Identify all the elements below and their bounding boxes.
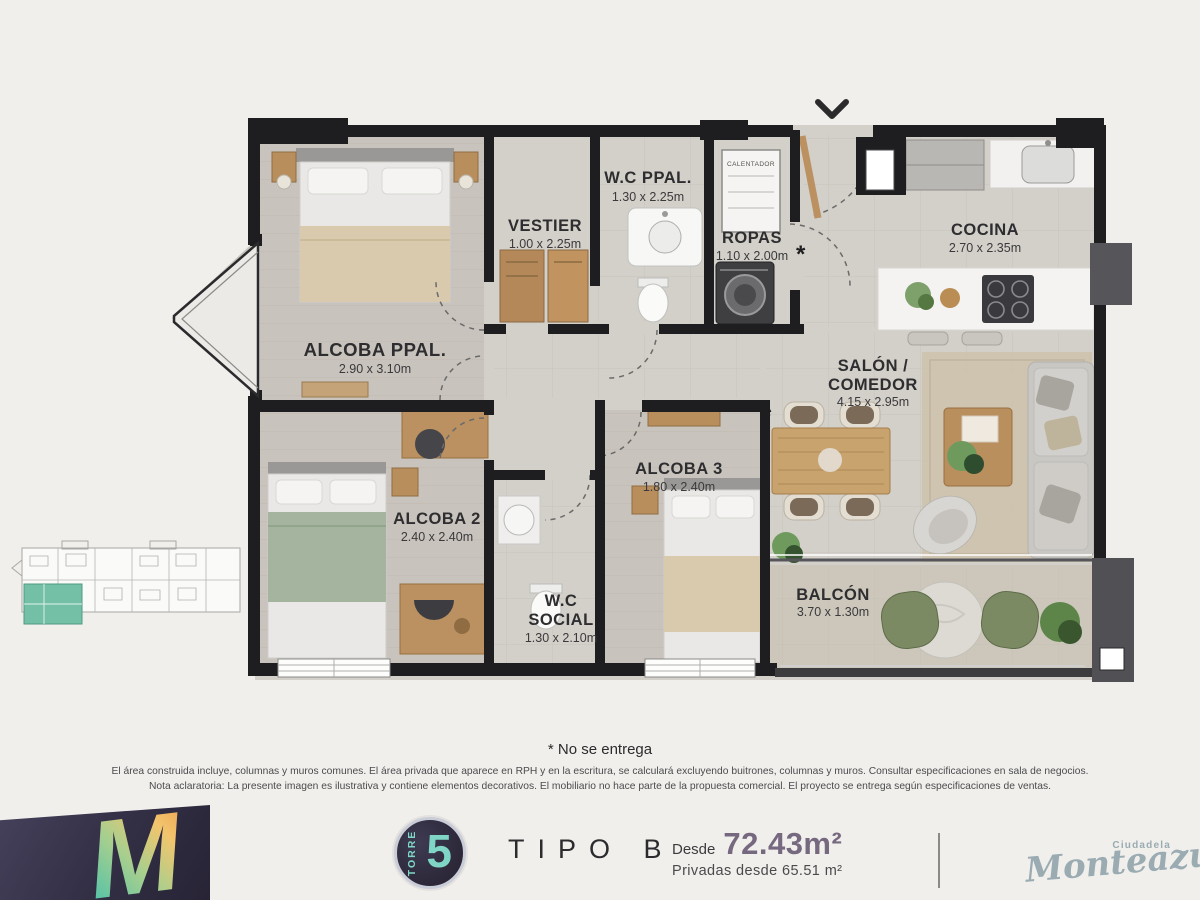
label-wc-social-1: W.C (545, 592, 578, 610)
tower-badge-word: TORRE (406, 830, 418, 877)
salon-asterisk: * (762, 403, 772, 430)
notes-block: * No se entrega El área construida inclu… (80, 741, 1120, 795)
dims-alcoba-2: 2.40 x 2.40m (401, 530, 473, 544)
key-plan (12, 541, 240, 624)
label-salon-1: SALÓN / (838, 356, 908, 375)
dims-balcon: 3.70 x 1.30m (797, 605, 869, 619)
brand-m-letter: M (82, 789, 190, 900)
label-cocina: COCINA (951, 221, 1019, 239)
entry-closet-door (866, 150, 894, 190)
ropas-asterisk: * (796, 241, 806, 268)
unit-type-label: TIPO B (508, 834, 675, 865)
dims-alcoba-ppal: 2.90 x 3.10m (339, 362, 411, 376)
floorplan-svg: CALENTADOR (0, 0, 1200, 760)
label-salon-2: COMEDOR (828, 376, 918, 394)
label-alcoba-ppal: ALCOBA PPAL. (304, 339, 447, 360)
tower-badge: TORRE 5 (394, 817, 466, 889)
closet-vestier (500, 250, 588, 322)
area-prefix: Desde (672, 841, 715, 858)
disclaimer-line-1: El área construida incluye, columnas y m… (80, 764, 1120, 779)
brand-m-logo: M (70, 790, 255, 900)
dims-ropas: 1.10 x 2.00m (716, 249, 788, 263)
area-value: 72.43m² (723, 826, 842, 862)
dims-wc-ppal: 1.30 x 2.25m (612, 190, 684, 204)
label-balcon: BALCÓN (796, 585, 870, 604)
no-entrega-note: * No se entrega (80, 741, 1120, 758)
brand-wordmark: Ciudadela Monteazul (1015, 828, 1185, 892)
private-area: Privadas desde 65.51 m² (672, 863, 932, 879)
floorplan-page: CALENTADOR (0, 0, 1200, 900)
footer-divider (938, 833, 940, 888)
label-wc-social-2: SOCIAL (528, 611, 593, 629)
label-alcoba-3: ALCOBA 3 (635, 460, 723, 478)
area-block: Desde 72.43m² Privadas desde 65.51 m² (672, 826, 932, 879)
entry-arrow-icon (818, 102, 846, 116)
living-set (903, 352, 1094, 565)
tower-badge-number: 5 (426, 824, 452, 878)
column-right (1090, 243, 1132, 305)
balcony-window (1100, 648, 1124, 670)
label-vestier: VESTIER (508, 217, 582, 235)
dims-cocina: 2.70 x 2.35m (949, 241, 1021, 255)
dims-vestier: 1.00 x 2.25m (509, 237, 581, 251)
label-alcoba-2: ALCOBA 2 (393, 510, 481, 528)
dims-alcoba-3: 1.80 x 2.40m (643, 480, 715, 494)
dims-wc-social: 1.30 x 2.10m (525, 631, 597, 645)
label-ropas: ROPAS (722, 229, 782, 247)
label-wc-ppal: W.C PPAL. (604, 169, 692, 187)
calentador-label: CALENTADOR (727, 161, 775, 168)
dims-salon: 4.15 x 2.95m (837, 395, 909, 409)
